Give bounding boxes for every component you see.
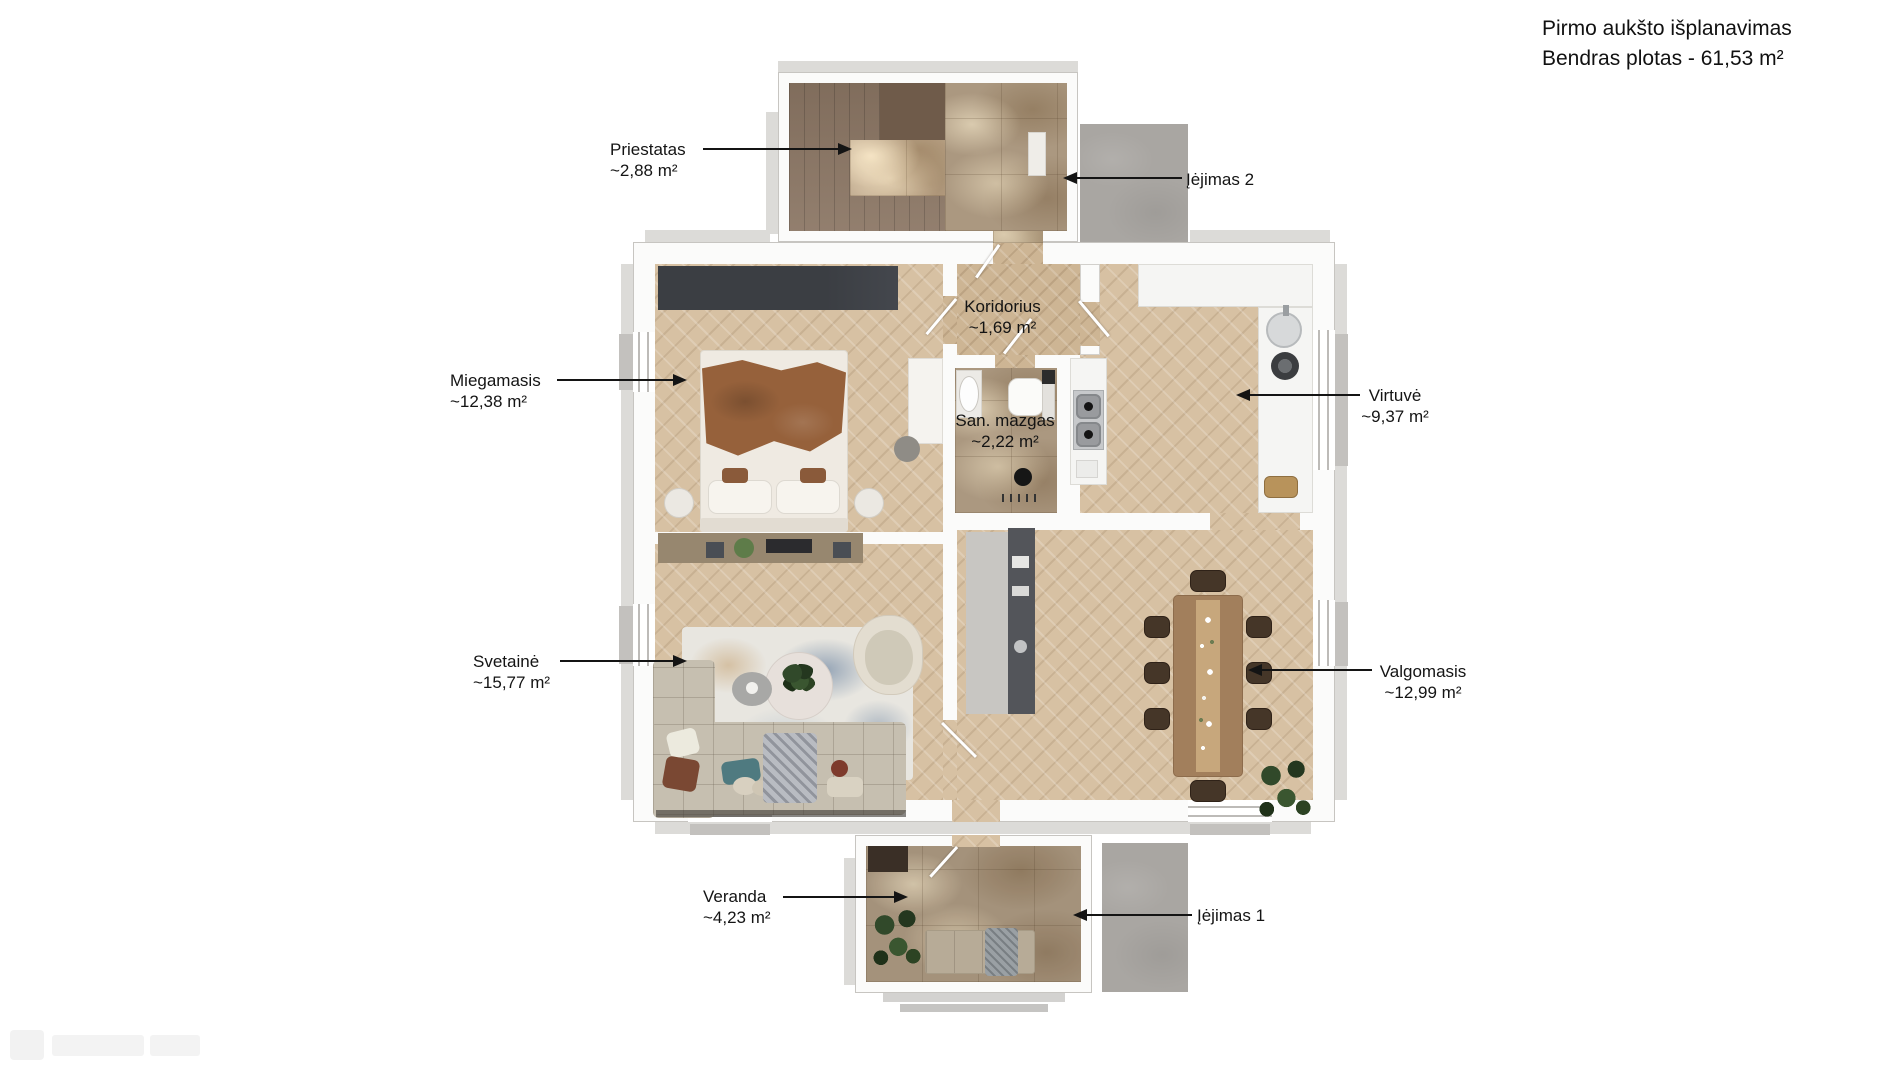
- label-koridorius: Koridorius ~1,69 m²: [940, 296, 1065, 338]
- room-area-virtuve: ~9,37 m²: [1340, 406, 1450, 427]
- room-area-veranda: ~4,23 m²: [703, 907, 771, 928]
- watermark-text-1: [52, 1035, 144, 1056]
- speaker-right: [833, 542, 851, 558]
- window-shade-left-1: [619, 334, 633, 390]
- wardrobe: [658, 266, 898, 310]
- annex-table: [880, 83, 945, 143]
- room-name-iejimas2: Įėjimas 2: [1186, 169, 1254, 190]
- pillow-rust: [661, 755, 700, 792]
- chair-left-3: [1144, 708, 1170, 730]
- label-priestatas: Priestatas ~2,88 m²: [610, 139, 686, 181]
- pillow-beige: [827, 777, 863, 797]
- veranda-bench: [925, 930, 1035, 974]
- room-name-koridorius: Koridorius: [940, 296, 1065, 317]
- sofa-shadow: [656, 810, 906, 817]
- arrow-head-priestatas: [838, 143, 852, 155]
- bedroom-window: [633, 332, 655, 392]
- room-name-iejimas1: Įėjimas 1: [1197, 905, 1265, 926]
- shadow-top-left: [645, 230, 770, 242]
- arrow-line-virtuve: [1250, 394, 1360, 396]
- dining-window-right: [1313, 600, 1335, 666]
- kitchen-faucet: [1283, 305, 1289, 316]
- decor-sphere: [831, 760, 848, 777]
- table-flowers: [1194, 602, 1222, 770]
- room-area-miegamasis: ~12,38 m²: [450, 391, 541, 412]
- arrow-head-valgomasis: [1248, 664, 1262, 676]
- arrow-head-veranda: [894, 891, 908, 903]
- bed-headboard: [700, 518, 848, 532]
- island-sink: [1012, 556, 1029, 568]
- arrow-line-iejimas1: [1087, 914, 1192, 916]
- window-shade-bottom-2: [1190, 824, 1270, 835]
- annex-bench: [1028, 132, 1046, 176]
- living-window-left: [633, 604, 655, 666]
- veranda-step-1: [883, 993, 1065, 1002]
- island-stool: [1014, 640, 1027, 653]
- label-veranda: Veranda ~4,23 m²: [703, 886, 771, 928]
- annex-tile-inset: [850, 140, 945, 196]
- kitchen-sink: [1266, 312, 1302, 348]
- kitchen-window: [1313, 330, 1335, 470]
- bathroom-door-opening: [995, 355, 1035, 368]
- window-shade-left-2: [619, 606, 633, 664]
- entrance2-pad: [1080, 124, 1188, 242]
- chair-top: [1190, 570, 1226, 592]
- room-area-san-mazgas: ~2,22 m²: [940, 431, 1070, 452]
- console-plant: [734, 538, 754, 558]
- chair-left-2: [1144, 662, 1170, 684]
- watermark-text-2: [150, 1035, 200, 1056]
- cutting-board: [1264, 476, 1298, 498]
- arrow-line-svetaine: [560, 660, 673, 662]
- label-svetaine: Svetainė ~15,77 m²: [473, 651, 550, 693]
- hob-burner-1-knob: [1084, 402, 1093, 411]
- room-name-priestatas: Priestatas: [610, 139, 686, 160]
- watermark: [8, 1026, 208, 1064]
- room-area-svetaine: ~15,77 m²: [473, 672, 550, 693]
- room-name-veranda: Veranda: [703, 886, 771, 907]
- room-area-koridorius: ~1,69 m²: [940, 317, 1065, 338]
- shower-drain-lines: [1002, 494, 1042, 502]
- kitchen-dishes: [1076, 460, 1098, 478]
- bed-cushion-left: [722, 468, 748, 483]
- island-tray: [1012, 586, 1029, 596]
- room-name-miegamasis: Miegamasis: [450, 370, 541, 391]
- coffee-table-plant: [782, 664, 816, 692]
- arrow-head-svetaine: [673, 655, 687, 667]
- window-shade-right-2: [1335, 602, 1348, 666]
- dining-plant: [1250, 750, 1320, 830]
- plan-title-line2: Bendras plotas - 61,53 m²: [1542, 44, 1792, 74]
- speaker-left: [706, 542, 724, 558]
- nightstand-right: [854, 488, 884, 518]
- annex-main-opening: [993, 243, 1043, 264]
- room-name-valgomasis: Valgomasis: [1367, 661, 1479, 682]
- chair-right-1: [1246, 616, 1272, 638]
- bath-sink: [959, 376, 979, 412]
- bed-pillow-left: [708, 480, 772, 514]
- bath-floor-lamp: [1014, 468, 1032, 486]
- arrow-line-miegamasis: [557, 379, 673, 381]
- veranda-door-opening: [952, 800, 1000, 822]
- room-name-svetaine: Svetainė: [473, 651, 550, 672]
- shadow-annex-top: [778, 61, 1078, 72]
- annex-door-opening: [993, 231, 1043, 243]
- arrow-head-virtuve: [1236, 389, 1250, 401]
- label-virtuve: Virtuvė ~9,37 m²: [1340, 385, 1450, 427]
- entrance1-pad: [1102, 843, 1188, 992]
- floor-runner: [966, 532, 1008, 714]
- kitchen-counter-top: [1138, 264, 1313, 307]
- room-area-priestatas: ~2,88 m²: [610, 160, 686, 181]
- tv: [766, 539, 812, 553]
- floor-plan-image: Pirmo aukšto išplanavimas Bendras plotas…: [0, 0, 1900, 1069]
- chair-left-1: [1144, 616, 1170, 638]
- bed-cushion-right: [800, 468, 826, 483]
- annex-tile-floor: [945, 83, 1067, 231]
- arrow-line-veranda: [783, 896, 894, 898]
- bedroom-pouf: [894, 436, 920, 462]
- bed-pillow-right: [776, 480, 840, 514]
- toilet-tank-lid: [1042, 370, 1055, 384]
- bench-throw: [985, 928, 1018, 976]
- shadow-top-right: [1190, 230, 1330, 242]
- window-shade-bottom-1: [690, 824, 770, 835]
- room-area-valgomasis: ~12,99 m²: [1367, 682, 1479, 703]
- label-valgomasis: Valgomasis ~12,99 m²: [1367, 661, 1479, 703]
- label-miegamasis: Miegamasis ~12,38 m²: [450, 370, 541, 412]
- nightstand-left: [664, 488, 694, 518]
- label-iejimas2: Įėjimas 2: [1186, 169, 1254, 190]
- plan-title-line1: Pirmo aukšto išplanavimas: [1542, 14, 1792, 44]
- arrow-line-valgomasis: [1262, 669, 1372, 671]
- room-name-san-mazgas: San. mazgas: [940, 410, 1070, 431]
- veranda-doormat: [868, 846, 908, 872]
- sofa-throw: [763, 733, 817, 803]
- shadow-veranda-left: [844, 858, 855, 985]
- arrow-line-iejimas2: [1077, 177, 1182, 179]
- dressing-table: [908, 358, 943, 444]
- arrow-line-priestatas: [703, 148, 838, 150]
- kitchen-pot: [1271, 352, 1299, 380]
- shadow-annex-left: [766, 112, 778, 234]
- arrow-head-iejimas1: [1073, 909, 1087, 921]
- chair-right-3: [1246, 708, 1272, 730]
- veranda-doorway: [952, 835, 1000, 847]
- hob-burner-2-knob: [1084, 430, 1093, 439]
- chair-bottom: [1190, 780, 1226, 802]
- arrow-head-miegamasis: [673, 374, 687, 386]
- veranda-tree: [866, 900, 928, 978]
- label-iejimas1: Įėjimas 1: [1197, 905, 1265, 926]
- watermark-mark: [10, 1030, 44, 1060]
- label-san-mazgas: San. mazgas ~2,22 m²: [940, 410, 1070, 452]
- armchair-seat: [865, 630, 913, 685]
- plan-title: Pirmo aukšto išplanavimas Bendras plotas…: [1542, 14, 1792, 74]
- veranda-step-2: [900, 1004, 1048, 1012]
- arrow-head-iejimas2: [1063, 172, 1077, 184]
- side-table-decor: [746, 682, 758, 694]
- kitchen-dining-opening: [1210, 513, 1300, 530]
